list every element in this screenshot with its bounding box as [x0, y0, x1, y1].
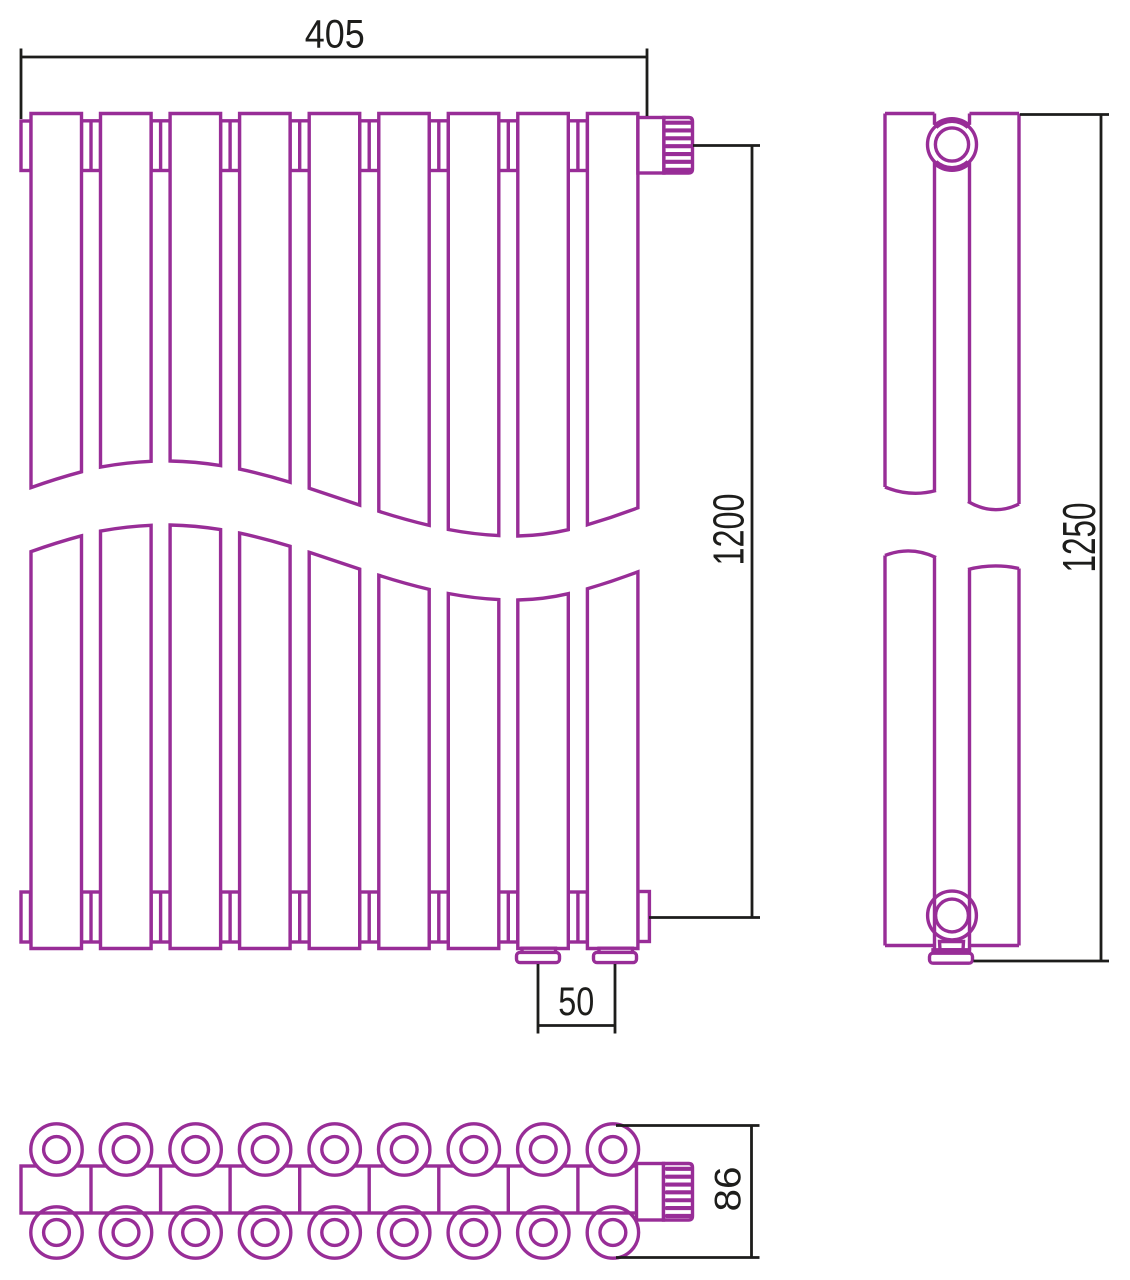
svg-text:86: 86 [708, 1167, 749, 1212]
svg-text:405: 405 [305, 13, 365, 57]
svg-text:1250: 1250 [1053, 503, 1105, 573]
svg-text:1200: 1200 [705, 494, 754, 566]
svg-text:50: 50 [558, 980, 594, 1024]
